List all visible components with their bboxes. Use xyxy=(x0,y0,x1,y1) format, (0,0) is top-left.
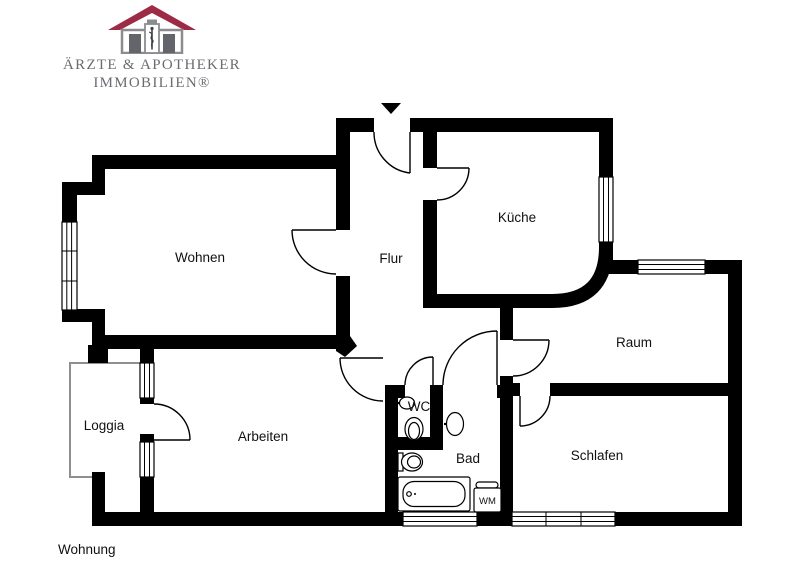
raum-door-arc xyxy=(513,340,549,376)
room-label-raum: Raum xyxy=(616,335,652,350)
entrance-arrow-icon xyxy=(381,103,401,114)
room-label-wohnen: Wohnen xyxy=(175,250,225,265)
wc-toilet xyxy=(405,418,423,441)
room-label-wc: WC xyxy=(408,399,431,414)
kueche-window xyxy=(599,177,613,242)
schlafen-window xyxy=(512,512,615,526)
room-label-arbeiten: Arbeiten xyxy=(238,429,288,444)
wc-door-arc xyxy=(405,357,433,385)
logo-dormer-bar xyxy=(147,20,157,24)
plan-caption: Wohnung xyxy=(58,542,116,557)
washing-machine-label: WM xyxy=(479,496,496,507)
logo-house-icon xyxy=(104,4,200,54)
room-label-loggia: Loggia xyxy=(84,418,125,433)
loggia-window-upper xyxy=(140,363,154,398)
bad-window xyxy=(403,512,477,526)
raum-window xyxy=(638,260,705,274)
entrance-door-arc xyxy=(374,132,410,173)
bad-door-arc xyxy=(443,331,497,385)
loggia-window-lower xyxy=(140,442,154,477)
logo-left-door xyxy=(129,34,141,53)
bad-sink xyxy=(444,413,464,436)
logo: ÄRZTE & APOTHEKER IMMOBILIEN® xyxy=(52,4,252,92)
bad-toilet xyxy=(398,453,423,471)
fixtures: WM xyxy=(398,397,501,512)
logo-text-line1: ÄRZTE & APOTHEKER xyxy=(52,57,252,74)
schlafen-door-arc xyxy=(520,396,550,426)
bathtub xyxy=(398,477,470,511)
page: ÄRZTE & APOTHEKER IMMOBILIEN® xyxy=(0,0,800,565)
logo-text-line2: IMMOBILIEN® xyxy=(52,75,252,92)
logo-right-door xyxy=(163,34,175,53)
room-label-bad: Bad xyxy=(456,451,480,466)
windows xyxy=(62,177,705,526)
doors xyxy=(154,132,550,440)
washing-machine: WM xyxy=(474,482,501,512)
loggia-door-arc xyxy=(154,404,190,440)
room-label-schlafen: Schlafen xyxy=(571,448,624,463)
arbeiten-door-arc xyxy=(340,358,383,401)
room-label-kueche: Küche xyxy=(498,210,536,225)
wohnen-bay-window xyxy=(62,222,77,310)
kueche-door-arc xyxy=(437,168,469,200)
room-label-flur: Flur xyxy=(379,251,403,266)
wohnen-door-arc xyxy=(292,230,336,274)
